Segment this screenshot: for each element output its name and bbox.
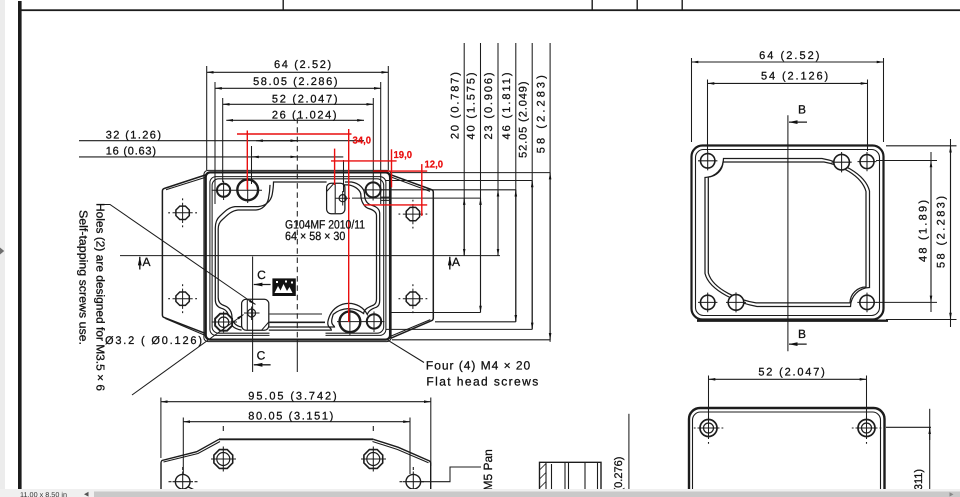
svg-text:Flat head screws: Flat head screws [426, 375, 538, 389]
svg-text:B: B [798, 103, 806, 117]
svg-text:A: A [452, 255, 460, 269]
svg-text:11.00 x 8.50 in: 11.00 x 8.50 in [20, 491, 67, 497]
svg-text:A: A [142, 255, 150, 269]
svg-text:23 (0.906): 23 (0.906) [483, 73, 495, 140]
svg-text:46 (1.811): 46 (1.811) [501, 73, 513, 140]
svg-text:Four (4) M4 × 20: Four (4) M4 × 20 [426, 359, 531, 373]
svg-text:52.05 (2.049): 52.05 (2.049) [517, 82, 529, 158]
svg-text:54 (2.126): 54 (2.126) [761, 71, 828, 83]
svg-text:C: C [257, 268, 266, 282]
svg-text:26 (1.024): 26 (1.024) [272, 110, 337, 122]
svg-text:64 × 58 × 30: 64 × 58 × 30 [285, 229, 346, 243]
svg-text:B: B [798, 327, 806, 341]
svg-text:64 (2.52): 64 (2.52) [759, 50, 819, 62]
svg-text:32 (1.26): 32 (1.26) [106, 129, 161, 141]
svg-text:58 (2.283): 58 (2.283) [936, 196, 948, 268]
svg-text:C: C [257, 348, 266, 362]
svg-text:40 (1.575): 40 (1.575) [466, 73, 478, 140]
svg-text:Holes (2) are designed for M3.: Holes (2) are designed for M3.5 × 6 [94, 203, 106, 391]
svg-text:80.05 (3.151): 80.05 (3.151) [248, 410, 333, 422]
svg-text:16 (0.63): 16 (0.63) [106, 146, 156, 158]
svg-text:58 (2.283): 58 (2.283) [535, 75, 547, 153]
svg-text:12,0: 12,0 [425, 160, 444, 171]
svg-text:48 (1.89): 48 (1.89) [918, 200, 930, 262]
svg-text:M5 Pan: M5 Pan [481, 449, 495, 490]
svg-text:34,0: 34,0 [353, 135, 372, 146]
svg-text:Ø3.2 ( Ø0.126): Ø3.2 ( Ø0.126) [105, 335, 202, 347]
svg-text:(0.276): (0.276) [613, 457, 625, 492]
svg-text:58.05 (2.286): 58.05 (2.286) [253, 76, 337, 88]
svg-text:64 (2.52): 64 (2.52) [274, 59, 331, 71]
svg-text:Self-tapping screws use.: Self-tapping screws use. [77, 210, 89, 345]
svg-text:95.05 (3.742): 95.05 (3.742) [248, 390, 336, 402]
svg-text:52 (2.047): 52 (2.047) [758, 367, 825, 379]
svg-text:20 (0.787): 20 (0.787) [449, 72, 461, 139]
svg-text:52 (2.047): 52 (2.047) [272, 94, 338, 106]
svg-text:19,0: 19,0 [394, 150, 413, 161]
